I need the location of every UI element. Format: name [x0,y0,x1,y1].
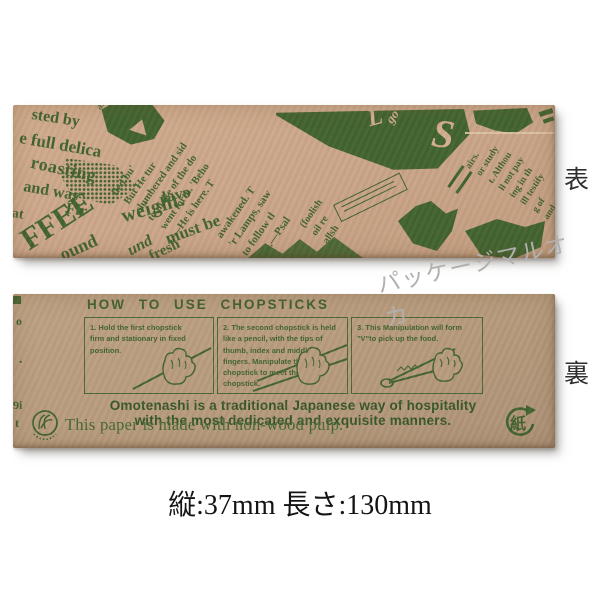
chopstick-step-1-box: 1. Hold the first chopstick firm and sta… [84,317,214,394]
chopstick-step-2-box: 2. The second chopstick is held like a p… [217,317,348,394]
omotenashi-message-line1: Omotenashi is a traditional Japanese way… [53,398,533,413]
pulp-note-text: This paper is made with non-wood pulp. [65,415,344,435]
newsprint-column: awakened. T'r Lamps, saw to follow tl'la… [213,179,301,258]
back-side-label: 裏 [564,354,589,390]
hand-illustration-step3 [377,345,477,389]
edge-print-text: H [13,334,14,345]
newsprint-text: sted by [30,107,80,130]
newsprint-column: airs.or study t. Althoull not pay ing in… [463,133,555,223]
svg-text:紙: 紙 [510,414,526,433]
non-wood-pulp-mark-icon [28,408,62,442]
edge-print-text: 9i [13,398,22,413]
newsprint-text: e full delica [18,129,103,160]
size-caption-text: 縦:37mm 長さ:130mm [0,483,600,523]
edge-print-text: t [15,416,19,431]
hand-illustration-step1 [131,342,213,392]
how-to-use-chopsticks-title: HOW TO USE CHOPSTICKS [87,297,329,312]
product-image-panel: sted by e full delica roasting and was F… [0,0,600,600]
front-side-label: 表 [564,160,589,196]
engraving-blob [398,201,458,251]
chopstick-step-3-box: 3. This Manipulation will form "V"to pic… [351,317,483,394]
edge-print-text: o [16,314,22,329]
paper-fold-line [465,132,555,134]
stamp-label [333,173,408,223]
edge-print-mark [13,296,21,304]
hand-illustration-step2 [251,341,349,393]
chopstick-sleeve-front-photo[interactable]: sted by e full delica roasting and was F… [13,105,555,258]
engraving-blob [543,116,555,123]
edge-print-text: . [19,352,23,368]
engraving-blob [539,108,554,117]
chopstick-sleeve-back-photo[interactable]: o H . 9i t HOW TO USE CHOPSTICKS 1. Hold… [13,294,555,448]
paper-recycle-mark-icon: 紙 [500,405,536,441]
engraving-blob [473,108,533,134]
